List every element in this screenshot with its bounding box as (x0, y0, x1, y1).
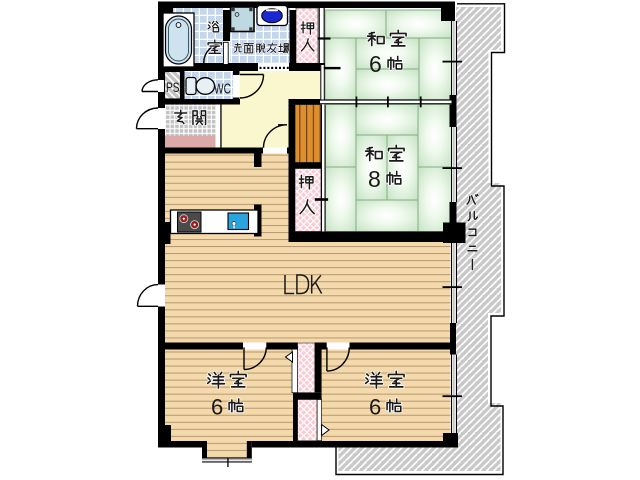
svg-text:6: 6 (211, 395, 223, 420)
svg-text:WC: WC (214, 82, 231, 98)
svg-text:PS: PS (166, 80, 180, 95)
svg-text:6: 6 (369, 395, 381, 420)
svg-text:8: 8 (368, 166, 381, 192)
svg-text:6: 6 (369, 51, 382, 77)
